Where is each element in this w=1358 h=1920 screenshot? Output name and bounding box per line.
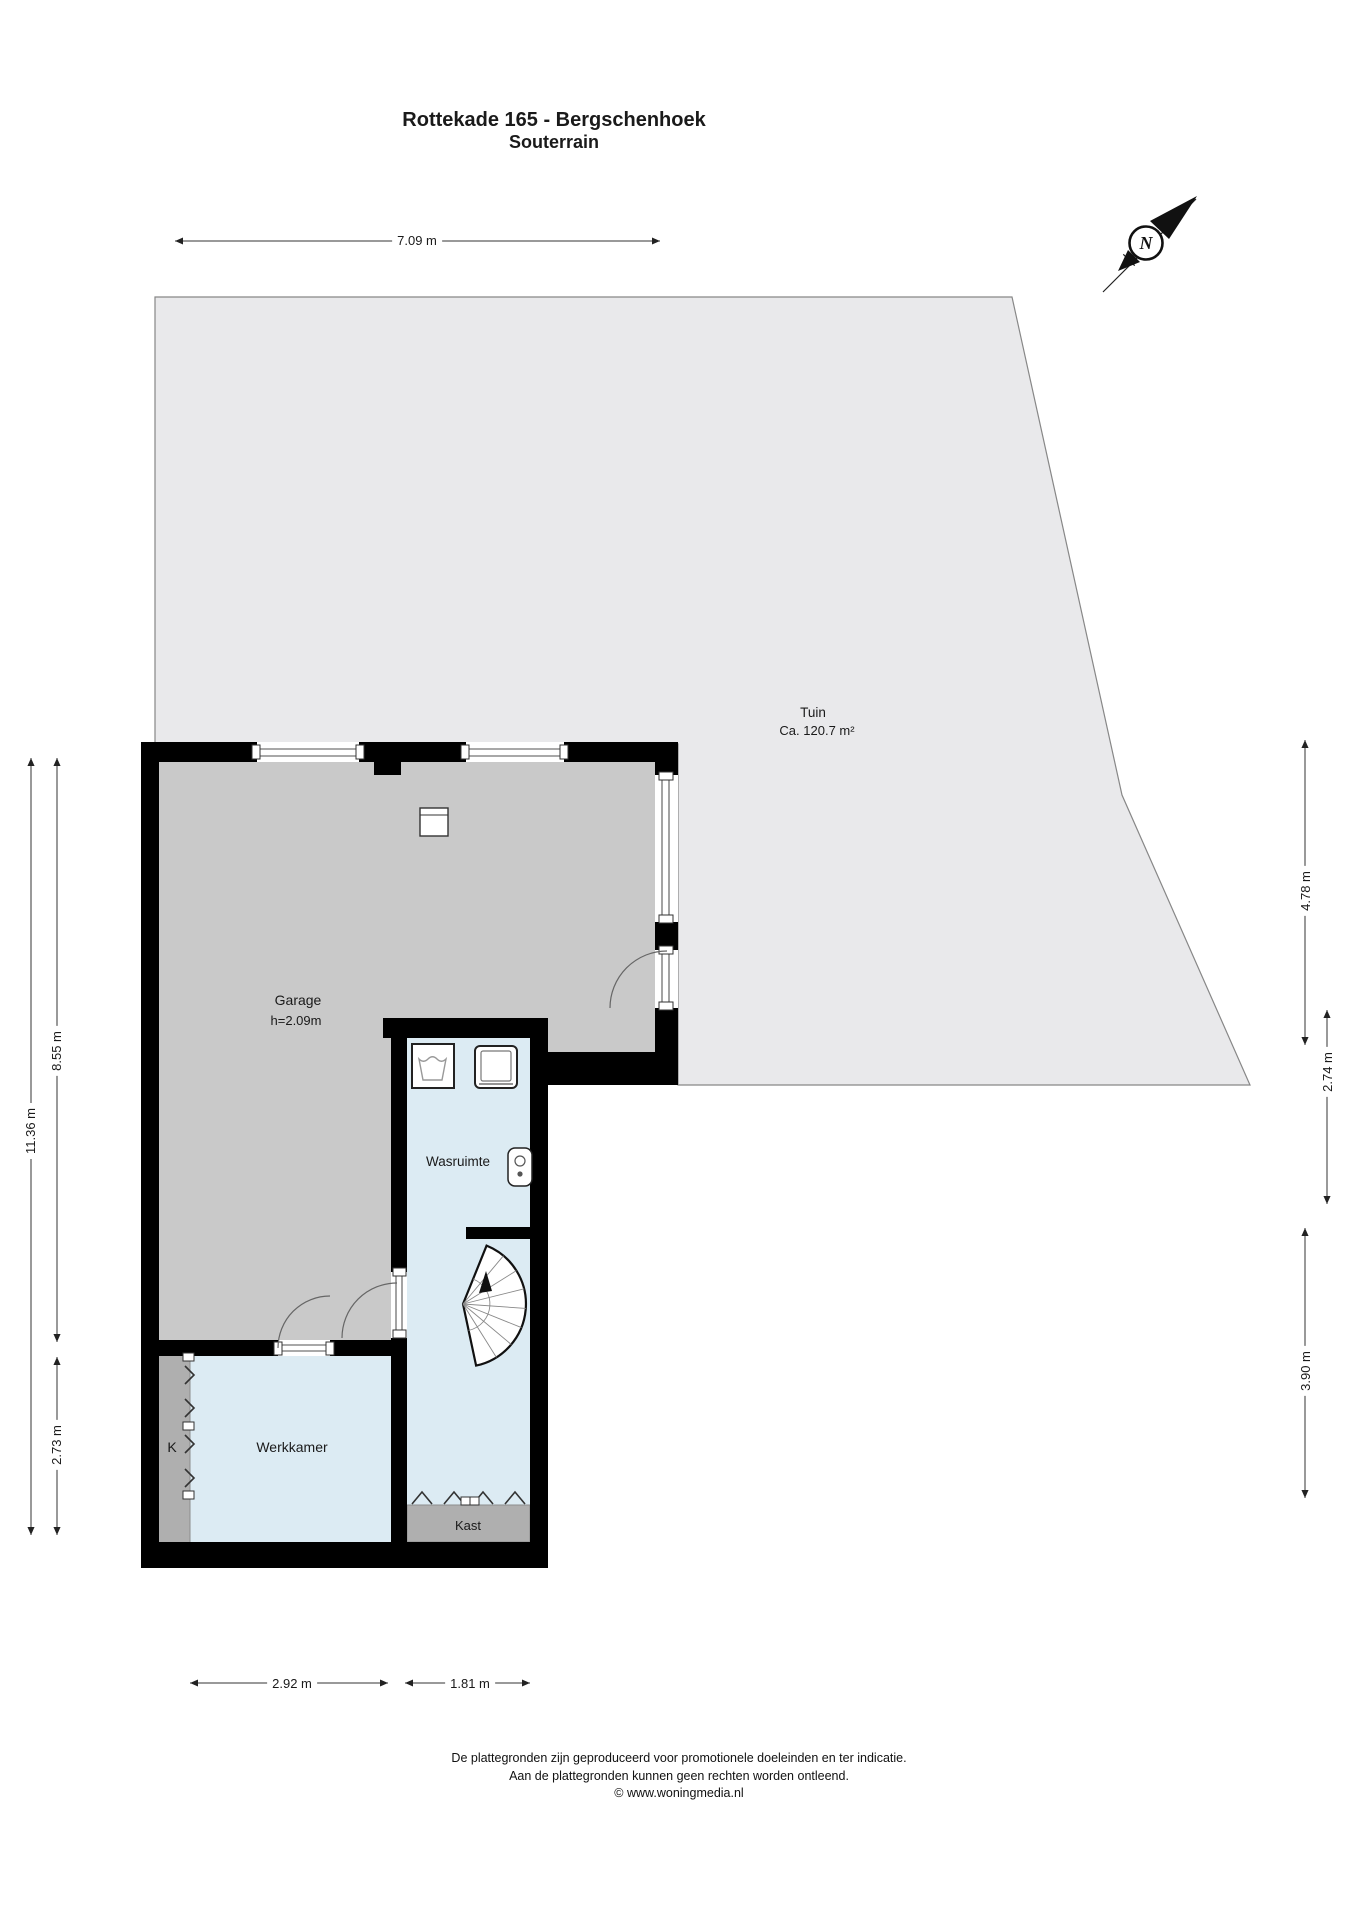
- dim-right-upper-label: 4.78 m: [1299, 866, 1313, 916]
- tuin-label: Tuin: [800, 706, 826, 720]
- dim-top-label: 7.09 m: [392, 234, 442, 248]
- washing-machine-icon: [412, 1044, 454, 1088]
- floorplan-drawing: N: [0, 0, 1358, 1920]
- window-top-right: [461, 742, 568, 762]
- title-floor: Souterrain: [402, 132, 705, 152]
- footer-disclaimer: De plattegronden zijn geproduceerd voor …: [451, 1750, 906, 1803]
- floorplan-page: N Rottekade 165 - Bergschenhoek Souterra…: [0, 0, 1358, 1920]
- werkkamer-label: Werkkamer: [256, 1440, 327, 1454]
- dim-right-middle-label: 2.74 m: [1321, 1047, 1335, 1097]
- k-label: K: [167, 1440, 176, 1454]
- tuin-area-label: Ca. 120.7 m²: [779, 724, 854, 738]
- boiler-icon: [508, 1148, 532, 1186]
- dim-bottom-left-label: 2.92 m: [267, 1677, 317, 1691]
- title-address: Rottekade 165 - Bergschenhoek: [402, 108, 705, 132]
- footer-line-1: De plattegronden zijn geproduceerd voor …: [451, 1750, 906, 1768]
- dim-bottom-right-label: 1.81 m: [445, 1677, 495, 1691]
- dryer-icon: [475, 1046, 517, 1088]
- dim-left-outer-label: 11.36 m: [24, 1103, 38, 1159]
- window-top-left: [252, 742, 364, 762]
- footer-line-2: Aan de plattegronden kunnen geen rechten…: [451, 1768, 906, 1786]
- dim-right-lower-label: 3.90 m: [1299, 1346, 1313, 1396]
- utility-box: [420, 808, 448, 836]
- north-label: N: [1139, 233, 1154, 253]
- dim-left-lower-label: 2.73 m: [50, 1420, 64, 1470]
- window-right-wall: [655, 772, 678, 923]
- wasruimte-label: Wasruimte: [426, 1155, 490, 1169]
- footer-line-3: © www.woningmedia.nl: [451, 1785, 906, 1803]
- north-arrow-icon: N: [1103, 196, 1197, 292]
- page-title: Rottekade 165 - Bergschenhoek Souterrain: [402, 108, 705, 152]
- dim-left-upper-label: 8.55 m: [50, 1026, 64, 1076]
- kast-label: Kast: [455, 1519, 481, 1533]
- garage-height-label: h=2.09m: [271, 1014, 322, 1028]
- garage-label: Garage: [275, 993, 322, 1007]
